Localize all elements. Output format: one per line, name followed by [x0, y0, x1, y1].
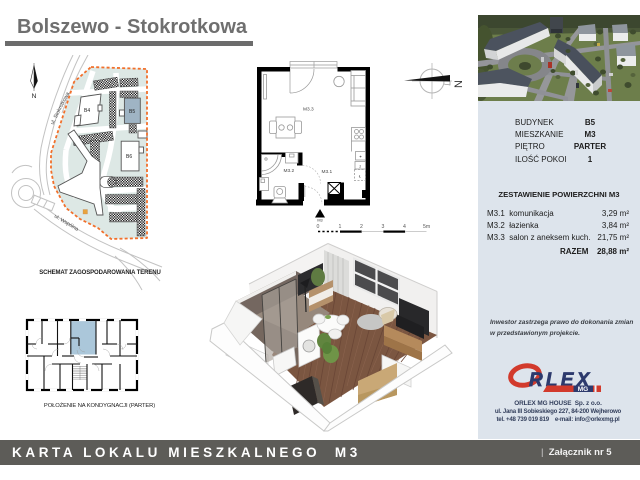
svg-text:3: 3: [382, 224, 385, 230]
svg-text:M3.3: M3.3: [303, 107, 314, 113]
svg-text:B5: B5: [129, 109, 135, 115]
svg-text:1: 1: [339, 224, 342, 230]
svg-text:N: N: [453, 80, 465, 88]
svg-text:M3.2: M3.2: [284, 168, 295, 174]
svg-text:N: N: [32, 93, 37, 100]
svg-text:B4: B4: [84, 108, 90, 114]
svg-text:z: z: [359, 164, 361, 169]
svg-text:2: 2: [360, 224, 363, 230]
svg-text:4: 4: [403, 224, 406, 230]
svg-text:B6: B6: [126, 154, 132, 160]
svg-text:M3: M3: [317, 219, 322, 223]
svg-text:M3.1: M3.1: [322, 169, 333, 175]
svg-text:5m: 5m: [423, 224, 430, 230]
svg-text:0: 0: [317, 224, 320, 230]
svg-text:MG: MG: [578, 386, 588, 393]
